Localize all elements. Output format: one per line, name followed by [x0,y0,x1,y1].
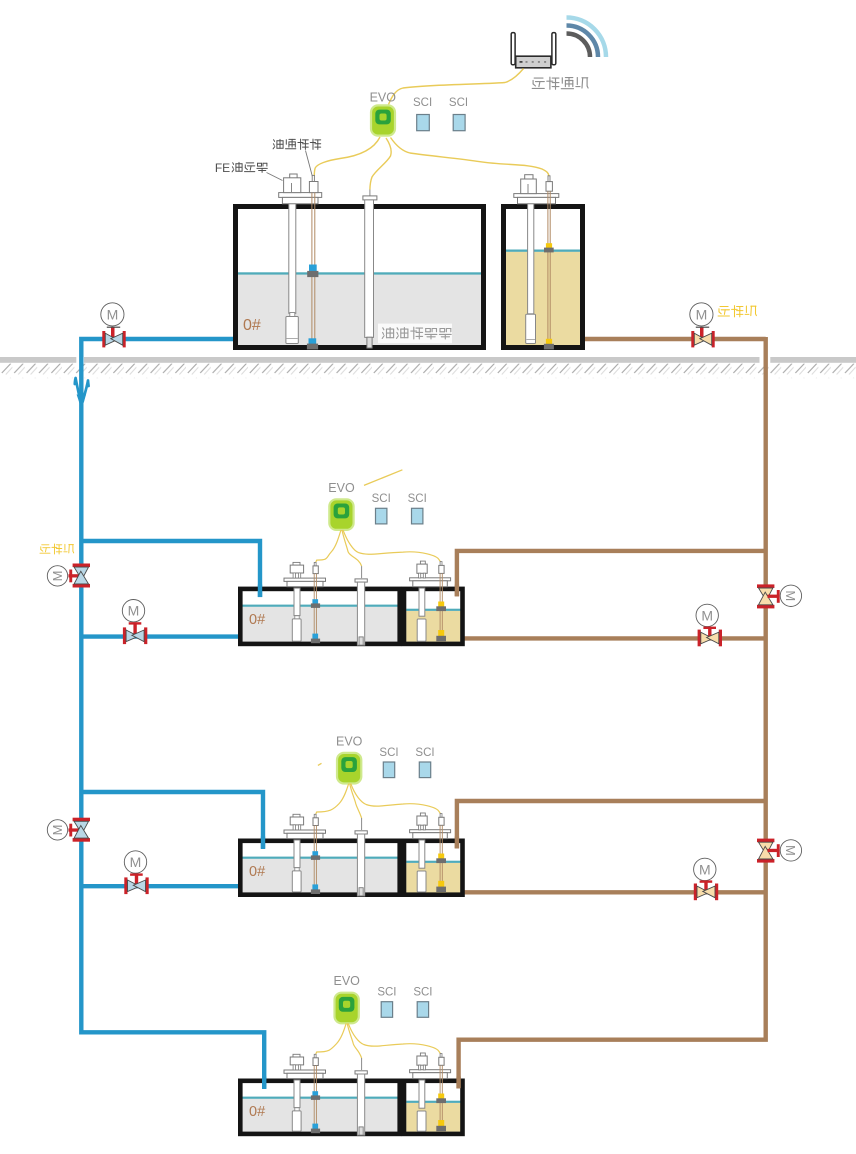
svg-text:0#: 0# [249,612,265,628]
svg-text:0#: 0# [249,864,265,880]
svg-text:M: M [50,570,65,581]
svg-text:SCI: SCI [413,97,432,109]
svg-text:SCI: SCI [372,493,391,505]
svg-text:0#: 0# [243,317,261,334]
svg-text:M: M [130,854,142,870]
svg-text:EVO: EVO [370,91,397,105]
svg-text:M: M [107,306,119,322]
svg-text:EVO: EVO [333,974,360,988]
svg-text:M: M [783,845,798,856]
svg-text:M: M [696,306,708,322]
svg-text:SCI: SCI [415,747,434,759]
svg-text:M: M [50,824,65,835]
svg-text:M: M [701,607,713,623]
svg-text:M: M [783,590,798,601]
svg-text:SCI: SCI [377,987,396,999]
svg-text:EVO: EVO [328,481,355,495]
svg-text:SCI: SCI [408,493,427,505]
svg-text:EVO: EVO [336,734,363,748]
svg-text:M: M [128,603,140,619]
svg-text:SCI: SCI [379,747,398,759]
svg-text:SCI: SCI [449,97,468,109]
svg-text:FE: FE [215,161,230,175]
svg-text:SCI: SCI [413,987,432,999]
svg-text:0#: 0# [249,1104,265,1120]
svg-text:M: M [699,861,711,877]
